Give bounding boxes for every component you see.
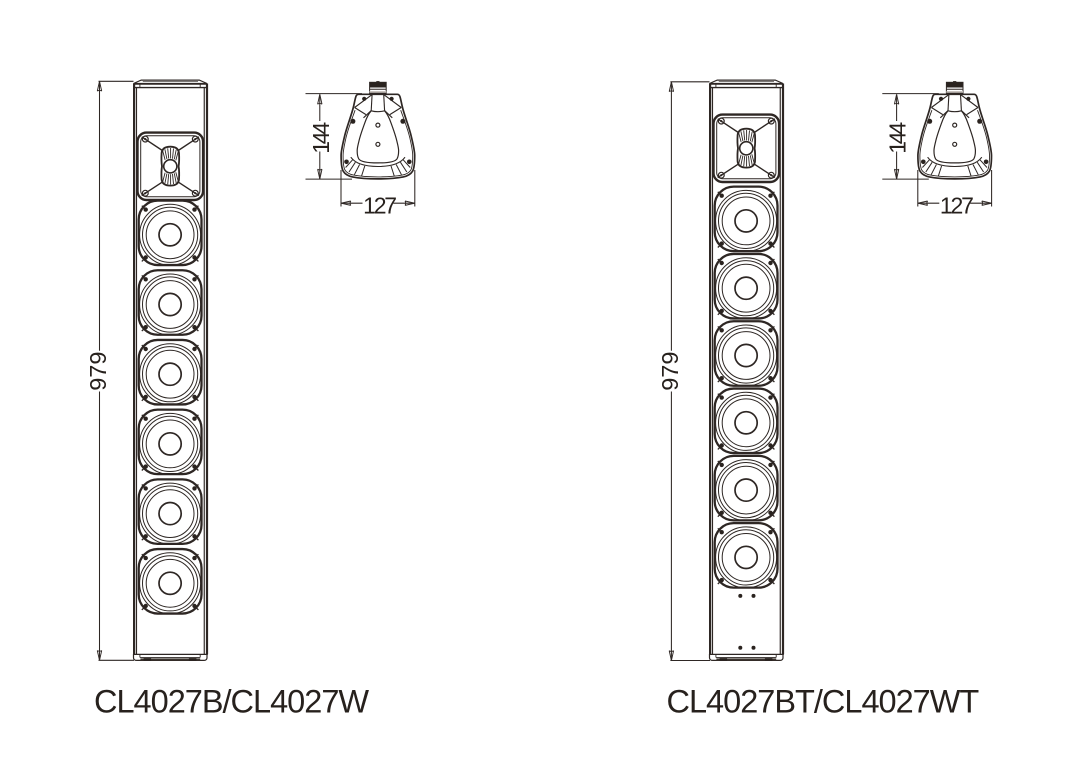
svg-text:979: 979 bbox=[85, 352, 111, 391]
svg-text:144: 144 bbox=[308, 122, 334, 154]
svg-text:979: 979 bbox=[657, 352, 683, 391]
svg-text:144: 144 bbox=[885, 122, 911, 154]
svg-text:127: 127 bbox=[363, 192, 396, 218]
svg-text:CL4027B/CL4027W: CL4027B/CL4027W bbox=[94, 684, 369, 720]
svg-text:CL4027BT/CL4027WT: CL4027BT/CL4027WT bbox=[667, 684, 980, 720]
svg-text:127: 127 bbox=[940, 192, 973, 218]
